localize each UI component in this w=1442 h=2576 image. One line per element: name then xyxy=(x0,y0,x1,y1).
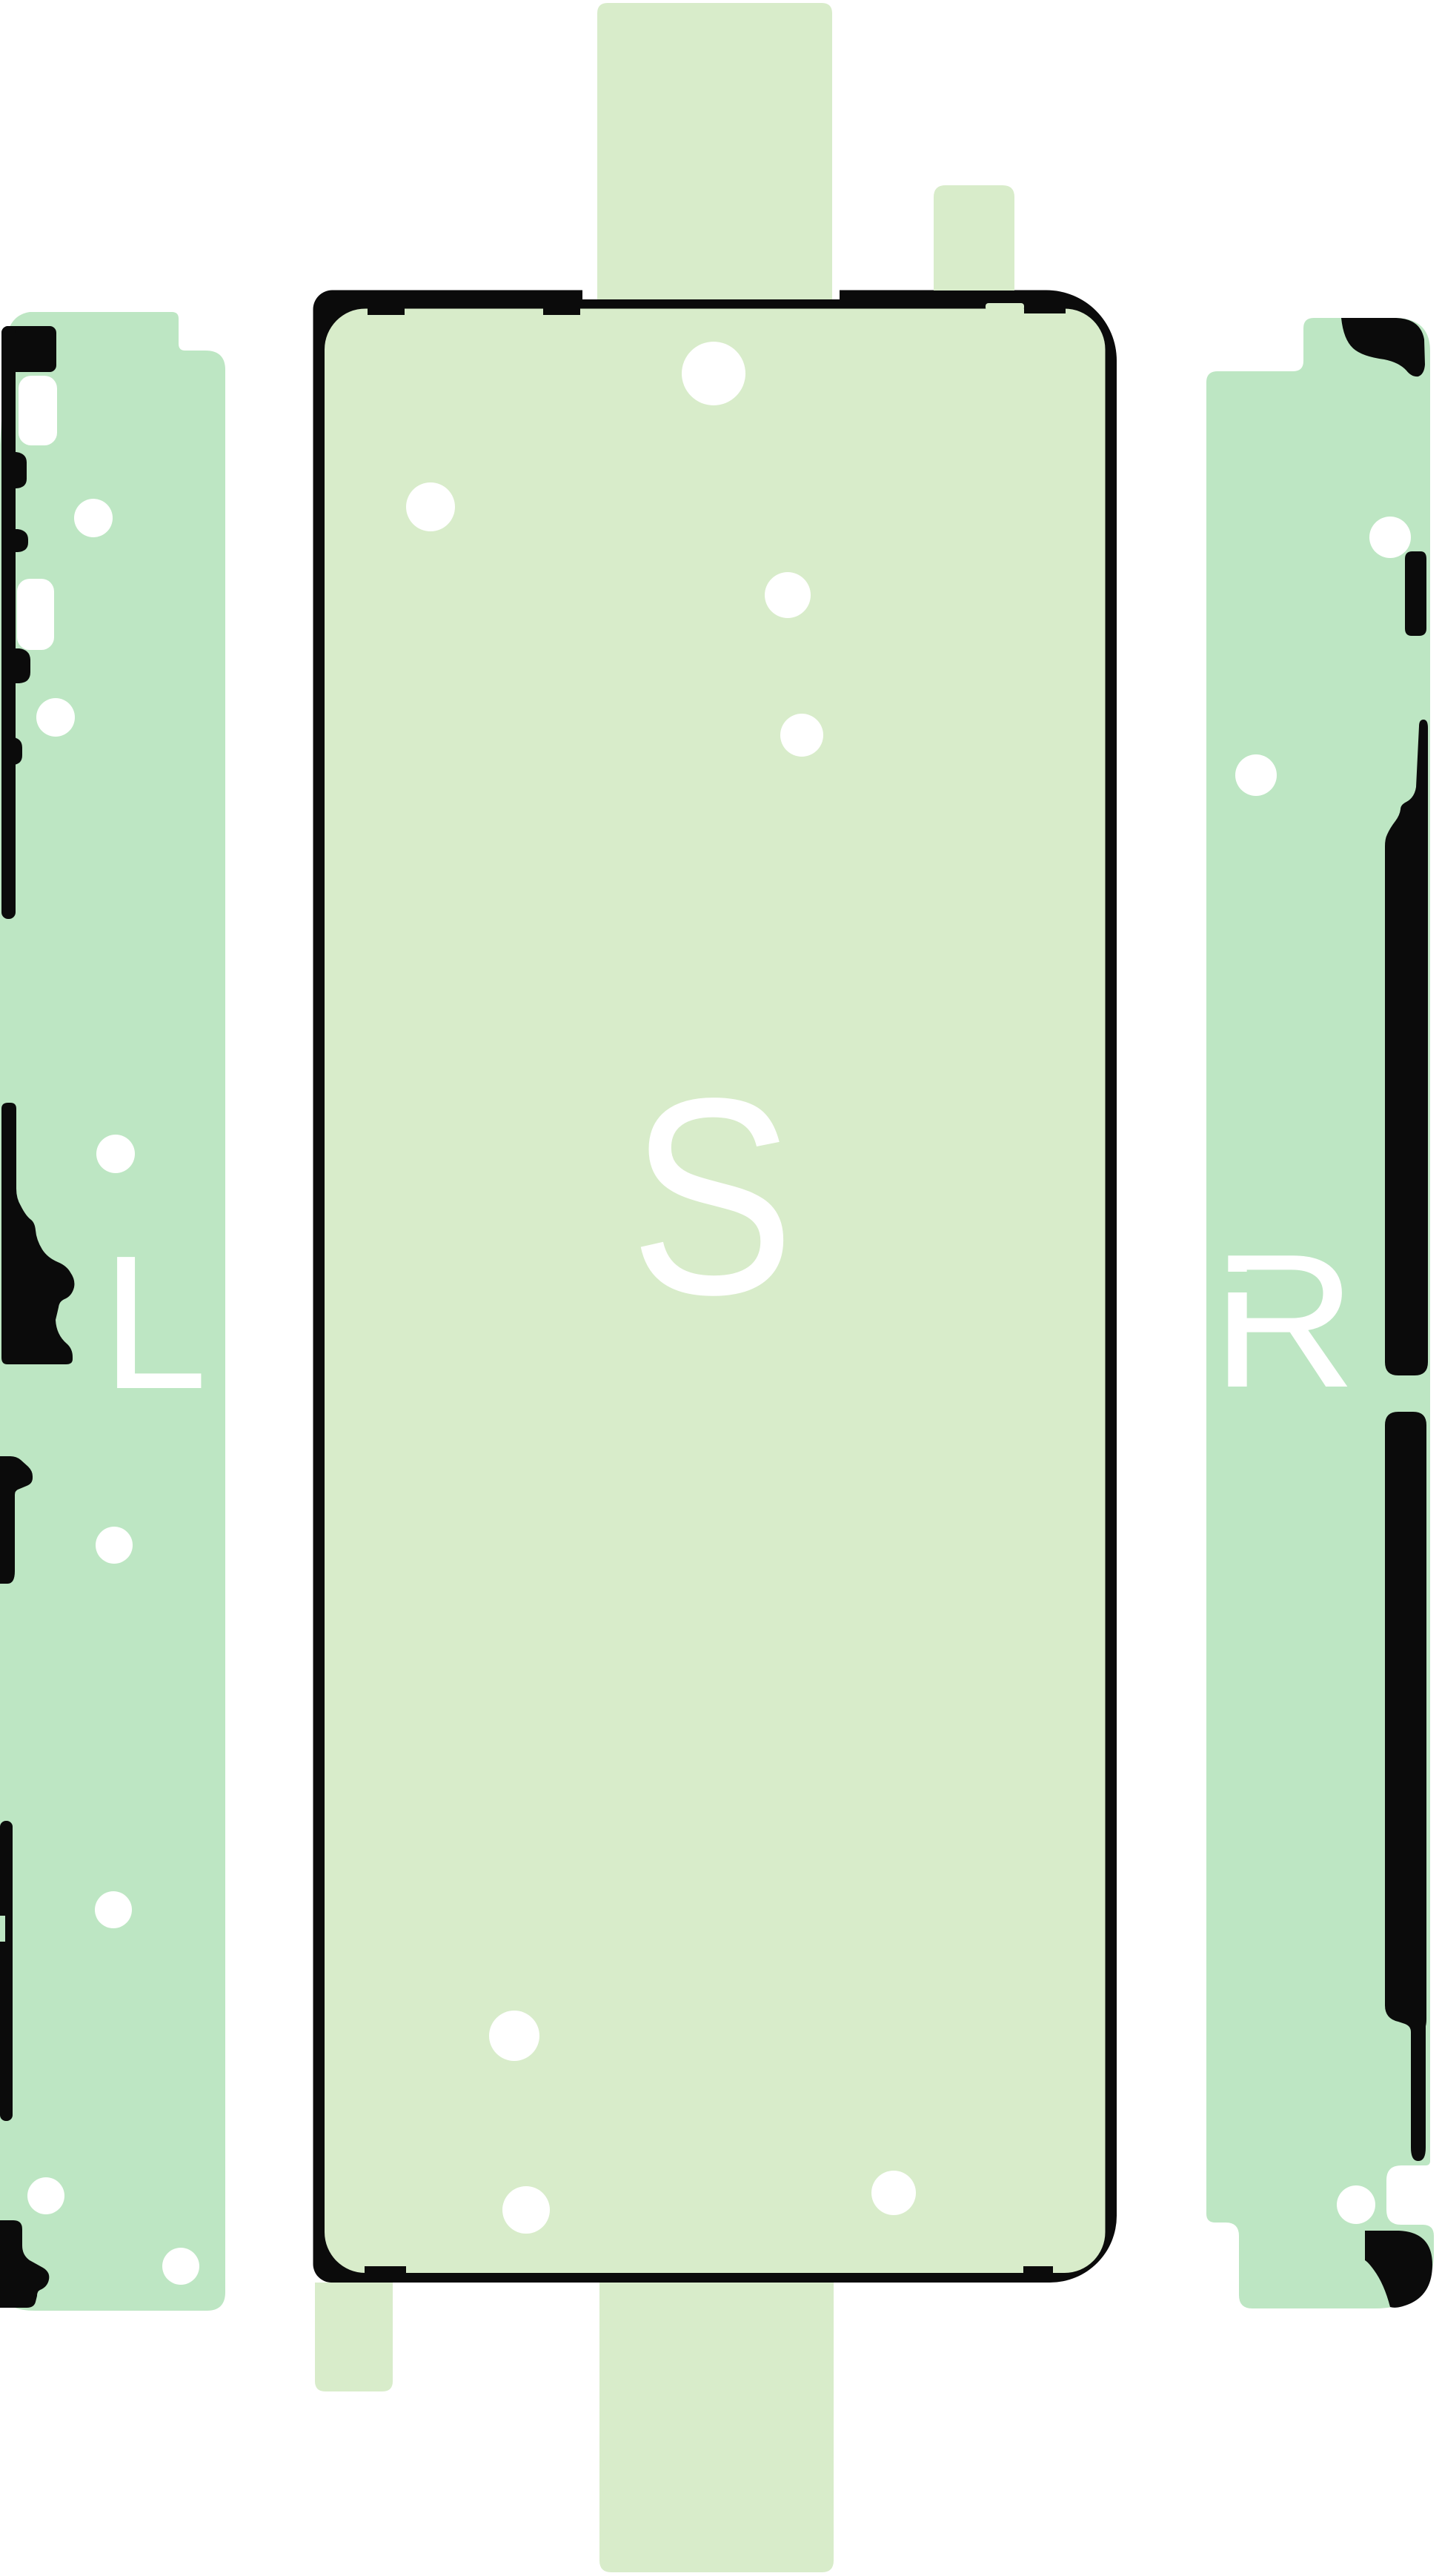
svg-text:L: L xyxy=(102,1216,207,1429)
svg-text:S: S xyxy=(630,1040,795,1353)
svg-text:R: R xyxy=(1212,1214,1357,1427)
